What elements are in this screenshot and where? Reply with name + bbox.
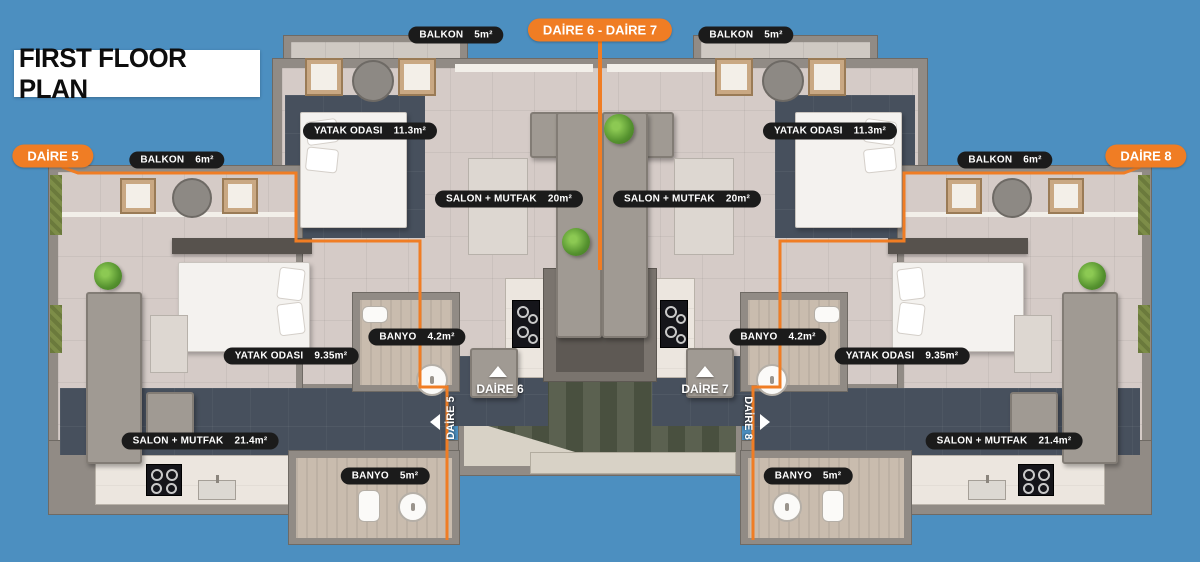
pillow	[305, 146, 339, 173]
balcony-table	[172, 178, 212, 218]
room-name: YATAK ODASI	[314, 126, 383, 137]
room-label-salon-right-small: SALON + MUTFAK 20m²	[613, 191, 761, 208]
room-name: BANYO	[379, 332, 416, 343]
room-label-banyo-left-bottom: BANYO 5m²	[341, 468, 430, 485]
balcony-table	[762, 60, 804, 102]
hedge-left-top	[50, 175, 62, 235]
room-area: 6m²	[195, 155, 213, 166]
balcony-chair	[398, 58, 436, 96]
toilet-right-bottom	[822, 490, 844, 522]
room-label-banyo-right-small: BANYO 4.2m²	[729, 329, 826, 346]
balcony-table	[992, 178, 1032, 218]
room-name: SALON + MUTFAK	[446, 194, 537, 205]
room-label-salon-left-small: SALON + MUTFAK 20m²	[435, 191, 583, 208]
room-area: 11.3m²	[394, 126, 426, 137]
staircase-landing	[530, 452, 736, 474]
toilet-left-bottom	[358, 490, 380, 522]
room-label-banyo-left-small: BANYO 4.2m²	[368, 329, 465, 346]
entry-label-daire8: DAİRE 8	[742, 396, 754, 439]
table-daire5	[150, 315, 188, 373]
sofa-daire7	[602, 112, 648, 338]
room-label-balkon-top-left: BALKON 5m²	[408, 27, 503, 44]
sink-left-small	[362, 306, 388, 323]
balcony-chair	[305, 58, 343, 96]
room-name: SALON + MUTFAK	[133, 436, 224, 447]
cooktop-daire8	[1018, 464, 1054, 496]
sink-right-small	[814, 306, 840, 323]
room-label-balkon-top-right: BALKON 5m²	[698, 27, 793, 44]
left-balcony-wall-line	[58, 212, 296, 217]
hedge-left-bottom	[50, 305, 62, 353]
table-daire8	[1014, 315, 1052, 373]
room-name: YATAK ODASI	[846, 351, 915, 362]
entry-label-daire7: DAİRE 7	[681, 382, 728, 396]
wardrobe-right	[888, 238, 1028, 254]
room-name: BANYO	[352, 471, 389, 482]
room-area: 20m²	[548, 194, 572, 205]
room-area: 5m²	[764, 30, 782, 41]
door-arrow-daire8-icon	[760, 414, 770, 430]
pillow	[276, 302, 306, 337]
room-label-salon-left-big: SALON + MUTFAK 21.4m²	[122, 433, 279, 450]
room-name: BALKON	[968, 155, 1012, 166]
hedge-right-bottom	[1138, 305, 1150, 353]
sink-daire5	[198, 480, 236, 500]
entry-label-daire5: DAİRE 5	[445, 396, 457, 439]
room-area: 9.35m²	[925, 351, 958, 362]
room-label-yatak-right-big: YATAK ODASI 11.3m²	[763, 123, 897, 140]
plan-title-box: FIRST FLOOR PLAN	[14, 50, 260, 97]
balcony-chair	[222, 178, 258, 214]
washer-right-bottom	[772, 492, 802, 522]
toilet-right-small	[756, 364, 788, 396]
plant-icon	[94, 262, 122, 290]
room-label-yatak-right-small: YATAK ODASI 9.35m²	[835, 348, 970, 365]
room-name: BALKON	[140, 155, 184, 166]
room-area: 11.3m²	[854, 126, 886, 137]
balcony-chair	[808, 58, 846, 96]
window-top-left	[455, 64, 593, 72]
plant-icon	[562, 228, 590, 256]
washer-left-bottom	[398, 492, 428, 522]
room-name: BALKON	[419, 30, 463, 41]
room-name: YATAK ODASI	[774, 126, 843, 137]
room-name: BANYO	[775, 471, 812, 482]
room-name: SALON + MUTFAK	[624, 194, 715, 205]
badge-daire5: DAİRE 5	[12, 145, 93, 168]
balcony-chair	[715, 58, 753, 96]
plan-title: FIRST FLOOR PLAN	[19, 43, 255, 105]
room-area: 5m²	[474, 30, 492, 41]
door-arrow-daire7-icon	[696, 366, 714, 377]
room-area: 20m²	[726, 194, 750, 205]
pillow	[896, 302, 926, 337]
room-label-yatak-left-big: YATAK ODASI 11.3m²	[303, 123, 437, 140]
pillow	[276, 267, 306, 302]
room-area: 6m²	[1023, 155, 1041, 166]
room-area: 5m²	[823, 471, 841, 482]
room-name: BALKON	[709, 30, 753, 41]
cooktop-daire7	[660, 300, 688, 348]
wardrobe-left	[172, 238, 312, 254]
pillow	[863, 146, 897, 173]
balcony-chair	[946, 178, 982, 214]
room-label-yatak-left-small: YATAK ODASI 9.35m²	[224, 348, 359, 365]
balcony-table	[352, 60, 394, 102]
entry-label-daire6: DAİRE 6	[476, 382, 523, 396]
door-arrow-daire6-icon	[489, 366, 507, 377]
room-label-balkon-left: BALKON 6m²	[129, 152, 224, 169]
toilet-left-small	[416, 364, 448, 396]
cooktop-daire5	[146, 464, 182, 496]
door-arrow-daire5-icon	[430, 414, 440, 430]
room-label-banyo-right-bottom: BANYO 5m²	[764, 468, 853, 485]
balcony-chair	[120, 178, 156, 214]
room-name: BANYO	[740, 332, 777, 343]
room-area: 21.4m²	[1038, 436, 1071, 447]
room-label-balkon-right: BALKON 6m²	[957, 152, 1052, 169]
cooktop-daire6	[512, 300, 540, 348]
room-name: SALON + MUTFAK	[937, 436, 1028, 447]
pillow	[896, 267, 926, 302]
plant-icon	[1078, 262, 1106, 290]
room-area: 4.2m²	[789, 332, 816, 343]
balcony-chair	[1048, 178, 1084, 214]
sofa-daire6	[556, 112, 602, 338]
plant-icon	[604, 114, 634, 144]
sink-daire8	[968, 480, 1006, 500]
room-label-salon-right-big: SALON + MUTFAK 21.4m²	[926, 433, 1083, 450]
floor-plan-canvas: ASANSÖR	[0, 0, 1200, 562]
room-name: YATAK ODASI	[235, 351, 304, 362]
badge-daire6-7: DAİRE 6 - DAİRE 7	[528, 19, 672, 42]
room-area: 21.4m²	[234, 436, 267, 447]
badge-daire8: DAİRE 8	[1105, 145, 1186, 168]
hedge-right-top	[1138, 175, 1150, 235]
room-area: 5m²	[400, 471, 418, 482]
room-area: 9.35m²	[314, 351, 347, 362]
room-area: 4.2m²	[428, 332, 455, 343]
